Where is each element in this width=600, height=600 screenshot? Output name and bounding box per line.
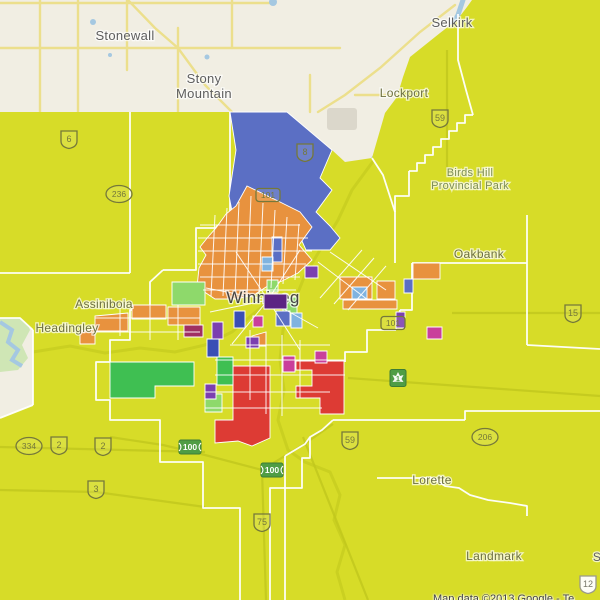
- highway-shield-1: 1: [390, 370, 406, 387]
- map-region-blue-4[interactable]: [404, 279, 413, 293]
- shield-number: 59: [345, 435, 355, 445]
- shield-number: 6: [66, 134, 71, 144]
- place-label-selkirk: Selkirk: [431, 15, 472, 30]
- shield-number: 59: [435, 113, 445, 123]
- place-label-line: Birds Hill: [447, 167, 493, 179]
- place-label-line: Landmark: [466, 549, 522, 563]
- highway-shield-2: 2: [51, 437, 67, 455]
- map-region-green-mid[interactable]: [217, 357, 233, 385]
- map-attribution: Map data ©2013 Google - Te: [433, 593, 574, 600]
- map-region-orange-e3[interactable]: [413, 263, 440, 279]
- place-label-lockport: Lockport: [380, 86, 429, 100]
- shield-number: 101: [386, 318, 400, 328]
- highway-shield-6: 6: [61, 131, 77, 149]
- highway-shield-15: 15: [565, 305, 581, 323]
- shield-number: 2: [100, 441, 105, 451]
- map-region-magenta-2[interactable]: [427, 327, 442, 339]
- place-label-assiniboia: Assiniboia: [75, 297, 133, 311]
- place-label-stonewall: Stonewall: [95, 28, 154, 43]
- shield-number: 75: [257, 517, 267, 527]
- highway-shield-101: 101: [381, 317, 405, 330]
- shield-number: 3: [93, 484, 98, 494]
- highway-shield-100: 100: [179, 440, 201, 454]
- shield-number: 1: [396, 376, 400, 383]
- place-label-line: Provincial Park: [431, 180, 509, 192]
- place-label-line: Assiniboia: [75, 297, 133, 311]
- highway-shield-100: 100: [261, 463, 283, 477]
- place-label-line: Oakbank: [454, 247, 505, 261]
- highway-shield-59: 59: [342, 432, 358, 450]
- pond: [90, 19, 96, 25]
- map-region-darkpurple-core[interactable]: [264, 294, 287, 309]
- highway-shield-3: 3: [88, 481, 104, 499]
- map-region-magenta-4[interactable]: [283, 356, 295, 372]
- shield-number: 8: [302, 147, 307, 157]
- map-region-darkmagenta-1[interactable]: [184, 325, 203, 337]
- shield-number: 100: [265, 465, 279, 475]
- highway-shield-59: 59: [432, 110, 448, 128]
- shield-number: 236: [112, 189, 126, 199]
- map-region-magenta-3[interactable]: [253, 316, 263, 327]
- place-label-partial-s: S: [593, 550, 600, 564]
- map-region-lightblue-2[interactable]: [291, 313, 302, 328]
- map-region-orange-sw2[interactable]: [132, 305, 166, 319]
- place-label-headingley: Headingley: [35, 321, 98, 335]
- map-region-purple-1[interactable]: [305, 266, 318, 278]
- place-label-lorette: Lorette: [412, 473, 451, 487]
- place-label-line: Stonewall: [95, 28, 154, 43]
- place-label-oakbank: Oakbank: [454, 247, 505, 261]
- place-label-line: Stony: [187, 71, 222, 86]
- highway-shield-75: 75: [254, 514, 270, 532]
- shield-number: 15: [568, 308, 578, 318]
- place-label-landmark: Landmark: [466, 549, 522, 563]
- map-region-darkblue-2[interactable]: [234, 311, 245, 328]
- map-region-darkblue-1[interactable]: [207, 339, 219, 357]
- industrial-area: [327, 108, 357, 130]
- highway-shield-101: 101: [256, 189, 280, 202]
- shield-number: 100: [183, 442, 197, 452]
- shield-number: 12: [583, 579, 593, 589]
- highway-shield-8: 8: [297, 144, 313, 162]
- place-label-line: Selkirk: [431, 15, 472, 30]
- place-label-line: Lockport: [380, 86, 429, 100]
- map-canvas[interactable]: 6236810110159591533422375206100100112Sto…: [0, 0, 600, 600]
- map-region-magenta-1[interactable]: [315, 351, 327, 363]
- map-region-lightgreen-assiniboia[interactable]: [172, 282, 205, 305]
- place-label-line: Lorette: [412, 473, 451, 487]
- place-label-line: Mountain: [176, 86, 232, 101]
- map-region-purple-4[interactable]: [246, 337, 259, 348]
- pond: [205, 55, 210, 60]
- shield-number: 2: [56, 440, 61, 450]
- map-region-orange-sw1[interactable]: [95, 313, 128, 331]
- place-label-line: Winnipeg: [226, 288, 299, 307]
- highway-shield-12: 12: [580, 576, 596, 594]
- pond: [108, 53, 112, 57]
- highway-shield-334: 334: [16, 438, 42, 455]
- map-region-orange-bar[interactable]: [343, 300, 397, 309]
- highway-shield-2: 2: [95, 438, 111, 456]
- highway-shield-236: 236: [106, 186, 132, 203]
- shield-number: 101: [261, 190, 275, 200]
- shield-number: 334: [22, 441, 36, 451]
- map-region-orange-sw3[interactable]: [168, 307, 200, 325]
- map-region-purple-3[interactable]: [212, 322, 223, 339]
- place-label-line: S: [593, 550, 600, 564]
- place-label-line: Headingley: [35, 321, 98, 335]
- highway-shield-206: 206: [472, 429, 498, 446]
- shield-number: 206: [478, 432, 492, 442]
- place-label-winnipeg: Winnipeg: [226, 288, 299, 307]
- map-svg[interactable]: 6236810110159591533422375206100100112Sto…: [0, 0, 600, 600]
